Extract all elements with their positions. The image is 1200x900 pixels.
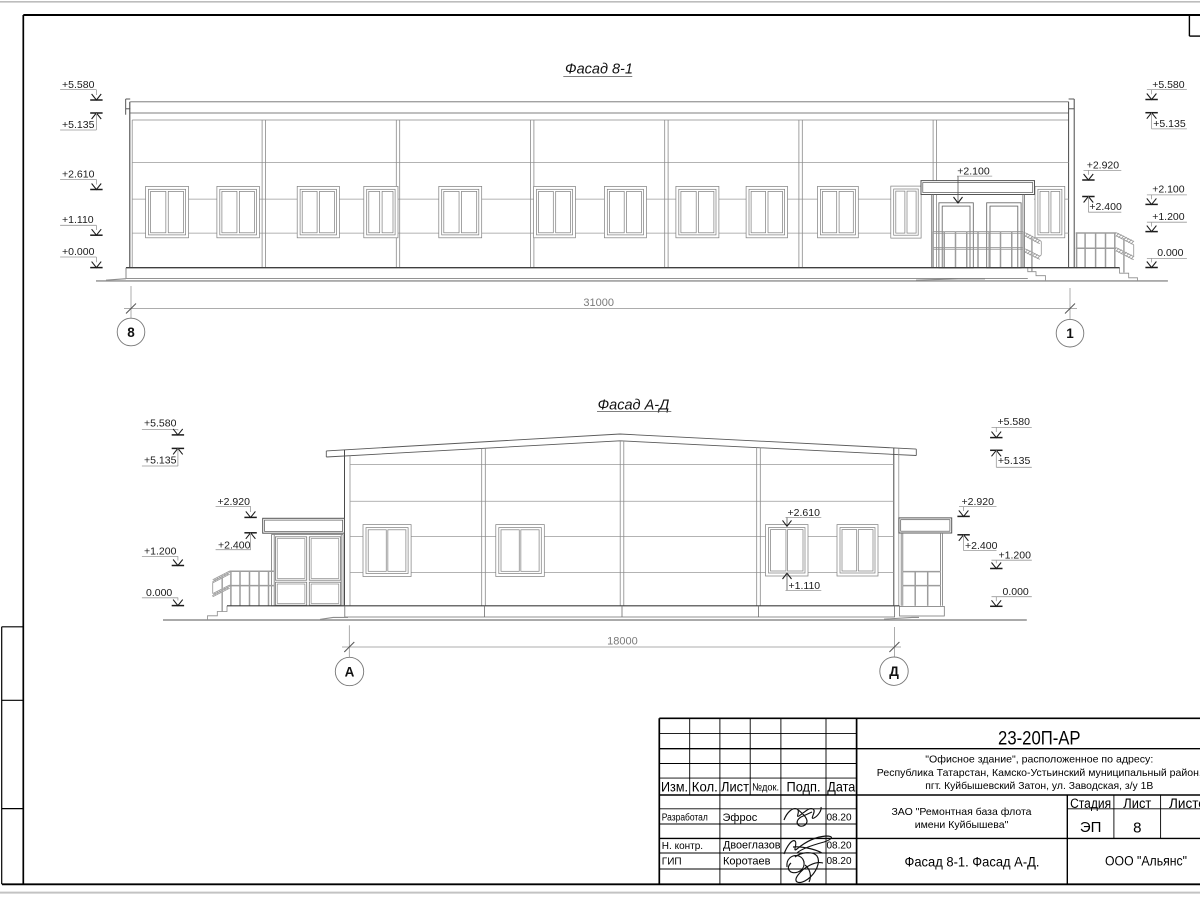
svg-text:+5.135: +5.135 [998,455,1031,467]
svg-text:пгт. Куйбышевский Затон, ул. З: пгт. Куйбышевский Затон, ул. Заводская, … [925,780,1153,792]
svg-text:"Офисное здание", расположенно: "Офисное здание", расположенное по адрес… [925,754,1153,766]
svg-text:+0.000: +0.000 [62,246,95,258]
svg-text:18000: 18000 [607,636,638,648]
svg-text:+2.920: +2.920 [218,496,251,508]
svg-text:имени Куйбышева": имени Куйбышева" [915,819,1009,831]
svg-text:+1.200: +1.200 [144,546,177,558]
svg-text:А: А [345,664,355,679]
svg-text:0.000: 0.000 [146,587,172,599]
svg-text:0.000: 0.000 [1003,586,1029,598]
svg-text:+1.200: +1.200 [1152,211,1185,223]
svg-text:Лист: Лист [1123,796,1151,811]
svg-text:+1.110: +1.110 [62,214,94,226]
svg-text:+5.135: +5.135 [144,455,177,467]
svg-text:+2.610: +2.610 [62,169,95,181]
svg-text:Стадия: Стадия [1070,796,1111,811]
svg-text:+1.110: +1.110 [789,580,821,592]
svg-text:Дата: Дата [827,778,855,794]
svg-text:23-20П-АР: 23-20П-АР [998,727,1081,749]
svg-text:+2.400: +2.400 [1089,201,1122,213]
svg-text:+5.580: +5.580 [1152,79,1185,91]
svg-text:Листов: Листов [1169,796,1200,811]
svg-text:+1.200: +1.200 [999,549,1032,561]
svg-text:ЗАО "Ремонтная база флота: ЗАО "Ремонтная база флота [891,806,1031,818]
svg-text:+2.100: +2.100 [1152,184,1185,196]
svg-text:Н. контр.: Н. контр. [662,841,703,852]
svg-text:1: 1 [1066,326,1074,341]
svg-text:Двоеглазов: Двоеглазов [723,840,781,852]
svg-text:08.20: 08.20 [826,840,851,851]
svg-text:+2.100: +2.100 [957,165,990,177]
svg-text:+5.580: +5.580 [144,418,177,430]
svg-text:Кол.: Кол. [692,778,718,794]
svg-text:Коротаев: Коротаев [723,855,771,867]
svg-text:Подп.: Подп. [787,778,821,794]
svg-text:+2.920: +2.920 [1087,160,1120,172]
svg-text:8: 8 [1133,820,1141,837]
svg-text:0.000: 0.000 [1157,247,1183,259]
svg-text:+5.580: +5.580 [998,416,1031,428]
svg-text:Лист: Лист [721,778,750,794]
svg-text:8: 8 [127,325,135,340]
svg-text:Разработал: Разработал [662,811,708,823]
svg-text:№док.: №док. [752,782,779,794]
svg-text:+2.920: +2.920 [962,496,995,508]
svg-text:Д: Д [889,664,899,679]
svg-text:31000: 31000 [583,297,614,309]
svg-text:Фасад 8-1: Фасад 8-1 [565,62,633,78]
svg-text:+5.135: +5.135 [62,119,95,131]
svg-text:ГИП: ГИП [662,857,682,868]
svg-text:ЭП: ЭП [1080,819,1102,836]
svg-text:08.20: 08.20 [826,812,851,823]
svg-text:Республика Татарстан, Камско-У: Республика Татарстан, Камско-Устьинский … [877,767,1200,779]
svg-text:08.20: 08.20 [826,856,851,867]
svg-text:ООО "Альянс": ООО "Альянс" [1105,854,1187,869]
svg-text:Фасад 8-1. Фасад А-Д.: Фасад 8-1. Фасад А-Д. [905,854,1040,870]
svg-text:+5.135: +5.135 [1153,118,1186,130]
svg-text:Изм.: Изм. [661,778,688,794]
svg-text:Эфрос: Эфрос [723,812,758,824]
